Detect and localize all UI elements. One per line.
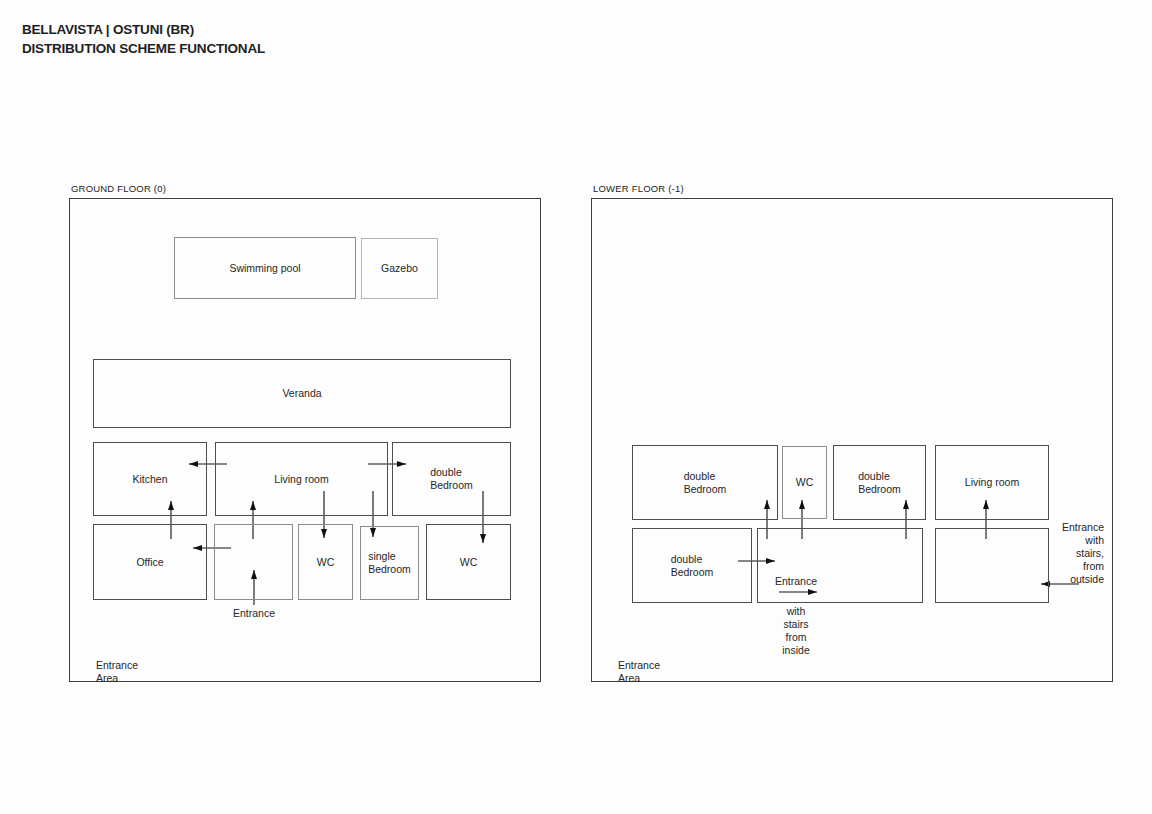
room-label: double Bedroom [684, 470, 727, 496]
room-double-bedroom-2: double Bedroom [833, 445, 926, 520]
room-veranda: Veranda [93, 359, 511, 428]
room-label: double Bedroom [858, 470, 901, 496]
room-label: Kitchen [132, 473, 167, 486]
entrance-area-label: Entrance Area [96, 659, 138, 685]
room-double-bedroom-3: double Bedroom [632, 528, 752, 603]
room-living-room: Living room [935, 445, 1049, 520]
room-wc-1: WC [298, 524, 353, 600]
entrance-outside-note: Entrance with stairs, from outside [1062, 521, 1104, 586]
room-entrance-hall [214, 524, 293, 600]
lower-floor-arrows-layer [592, 199, 1112, 681]
ground-floor-label: GROUND FLOOR (0) [71, 183, 166, 194]
room-wc: WC [782, 446, 827, 519]
drawing-sheet: BELLAVISTA | OSTUNI (BR) DISTRIBUTION SC… [0, 0, 1152, 814]
room-label: WC [460, 556, 478, 569]
room-label: double Bedroom [671, 553, 714, 579]
lower-floor-panel: LOWER FLOOR (-1) double BedroomWCdouble … [591, 198, 1113, 682]
room-label: WC [796, 476, 814, 489]
room-double-bedroom: double Bedroom [392, 442, 511, 516]
room-label: double Bedroom [430, 466, 473, 492]
entrance-label: Entrance [775, 575, 817, 588]
room-label: Swimming pool [229, 262, 300, 275]
room-label: Living room [965, 476, 1019, 489]
room-office: Office [93, 524, 207, 600]
lower-floor-label: LOWER FLOOR (-1) [593, 183, 684, 194]
room-label: Gazebo [381, 262, 418, 275]
room-label: single Bedroom [368, 550, 411, 576]
room-entrance-hall [757, 528, 923, 603]
project-title: BELLAVISTA | OSTUNI (BR) [22, 20, 265, 39]
room-wc-2: WC [426, 524, 511, 600]
room-swimming-pool: Swimming pool [174, 237, 356, 299]
room-kitchen: Kitchen [93, 442, 207, 516]
drawing-subtitle: DISTRIBUTION SCHEME FUNCTIONAL [22, 39, 265, 58]
ground-floor-panel: GROUND FLOOR (0) Swimming poolGazeboVera… [69, 198, 541, 682]
room-entry-room [935, 528, 1049, 603]
room-label: Living room [274, 473, 328, 486]
room-label: Veranda [282, 387, 321, 400]
room-living-room: Living room [215, 442, 388, 516]
room-label: Office [136, 556, 163, 569]
room-single-bedroom: single Bedroom [360, 526, 419, 600]
entrance-label: Entrance [233, 607, 275, 620]
entrance-area-label: Entrance Area [618, 659, 660, 685]
room-label: WC [317, 556, 335, 569]
room-double-bedroom-1: double Bedroom [632, 445, 778, 520]
title-block: BELLAVISTA | OSTUNI (BR) DISTRIBUTION SC… [22, 20, 265, 58]
stairs-inside-note: with stairs from inside [782, 605, 809, 657]
room-gazebo: Gazebo [361, 238, 438, 299]
